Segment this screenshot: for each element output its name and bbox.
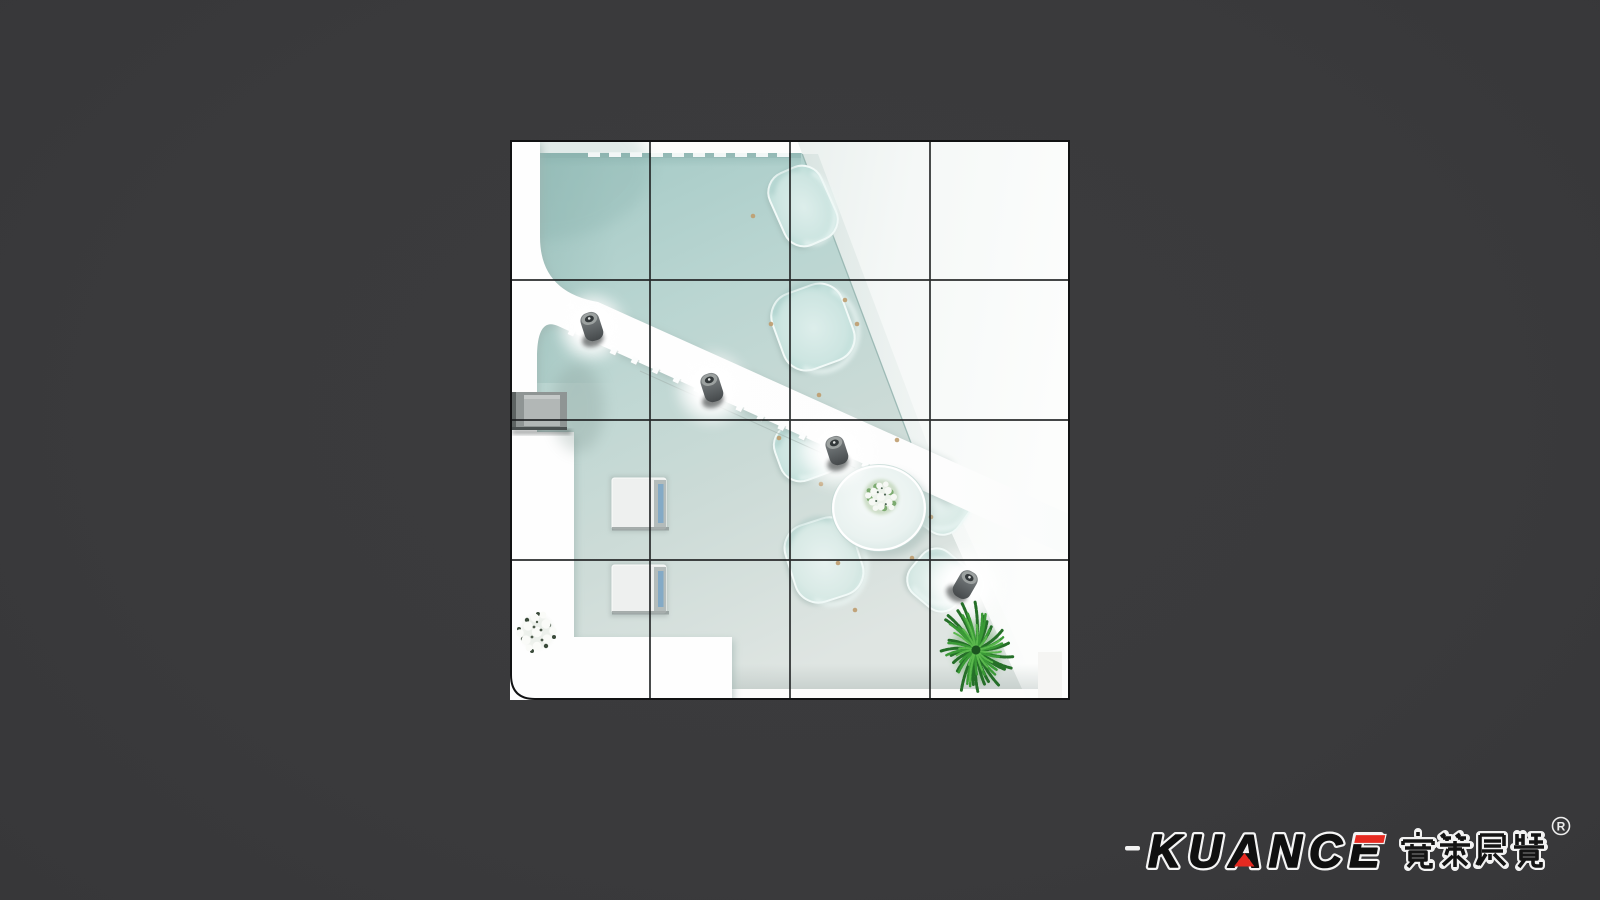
svg-text:R: R bbox=[1557, 820, 1566, 834]
svg-text:KUANCE: KUANCE bbox=[1148, 825, 1387, 877]
